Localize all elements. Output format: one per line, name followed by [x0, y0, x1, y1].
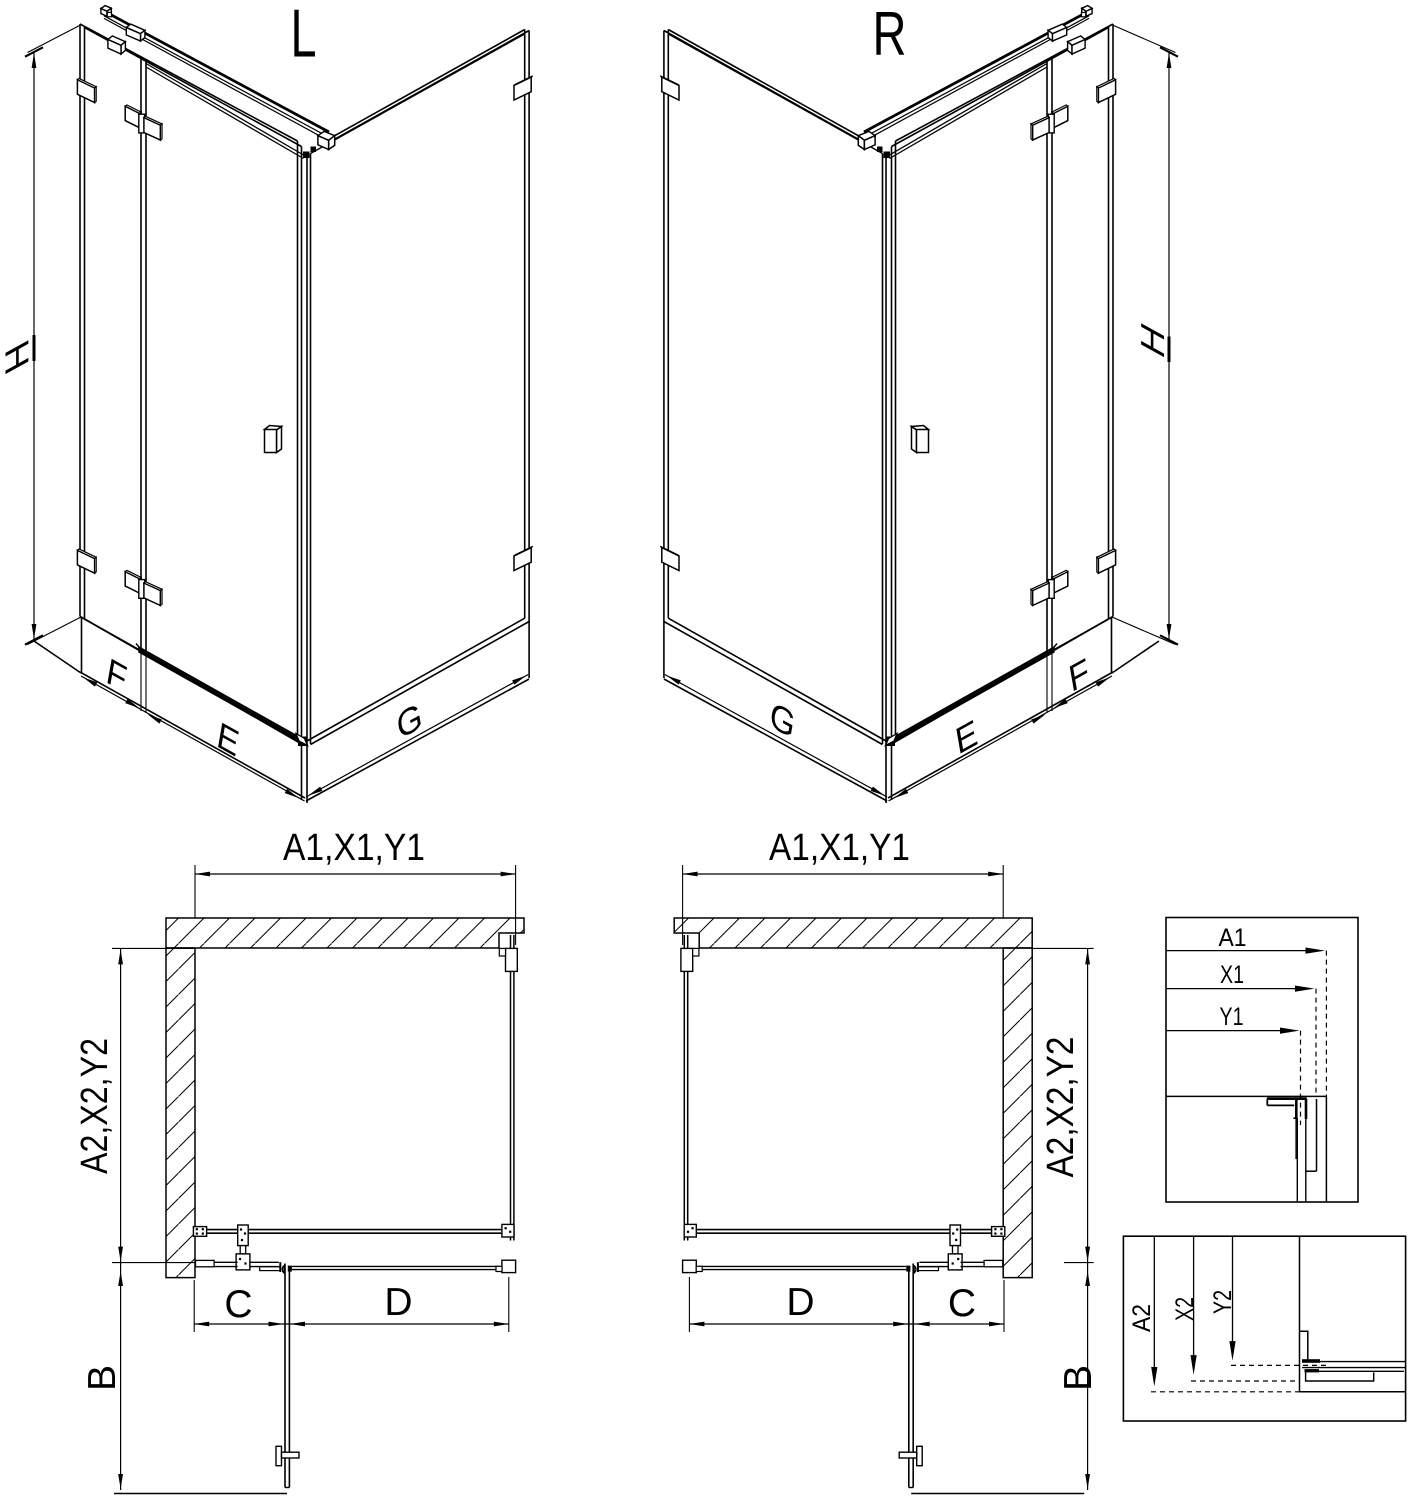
- svg-text:A1,X1,Y1: A1,X1,Y1: [769, 827, 910, 869]
- svg-text:A1: A1: [1219, 924, 1247, 952]
- svg-text:F: F: [104, 649, 130, 700]
- svg-text:H: H: [0, 334, 34, 382]
- svg-text:R: R: [873, 0, 907, 69]
- svg-text:E: E: [214, 713, 242, 765]
- svg-text:A2,X2,Y2: A2,X2,Y2: [1040, 1037, 1082, 1178]
- svg-text:D: D: [384, 1281, 412, 1324]
- svg-text:H: H: [1135, 317, 1172, 365]
- svg-text:G: G: [394, 694, 425, 748]
- svg-text:C: C: [948, 1282, 976, 1325]
- svg-text:B: B: [81, 1365, 124, 1391]
- svg-text:A2,X2,Y2: A2,X2,Y2: [74, 1038, 116, 1174]
- svg-text:Y2: Y2: [1209, 1290, 1237, 1314]
- svg-text:X1: X1: [1220, 961, 1244, 989]
- svg-text:D: D: [786, 1281, 814, 1324]
- svg-text:B: B: [1057, 1365, 1100, 1391]
- svg-text:X2: X2: [1171, 1297, 1199, 1321]
- svg-text:Y1: Y1: [1220, 1003, 1244, 1031]
- svg-text:F: F: [1066, 649, 1092, 700]
- svg-text:E: E: [952, 711, 980, 763]
- svg-text:C: C: [224, 1283, 252, 1326]
- svg-text:A2: A2: [1128, 1304, 1156, 1332]
- svg-text:L: L: [291, 0, 317, 72]
- svg-text:A1,X1,Y1: A1,X1,Y1: [283, 827, 425, 869]
